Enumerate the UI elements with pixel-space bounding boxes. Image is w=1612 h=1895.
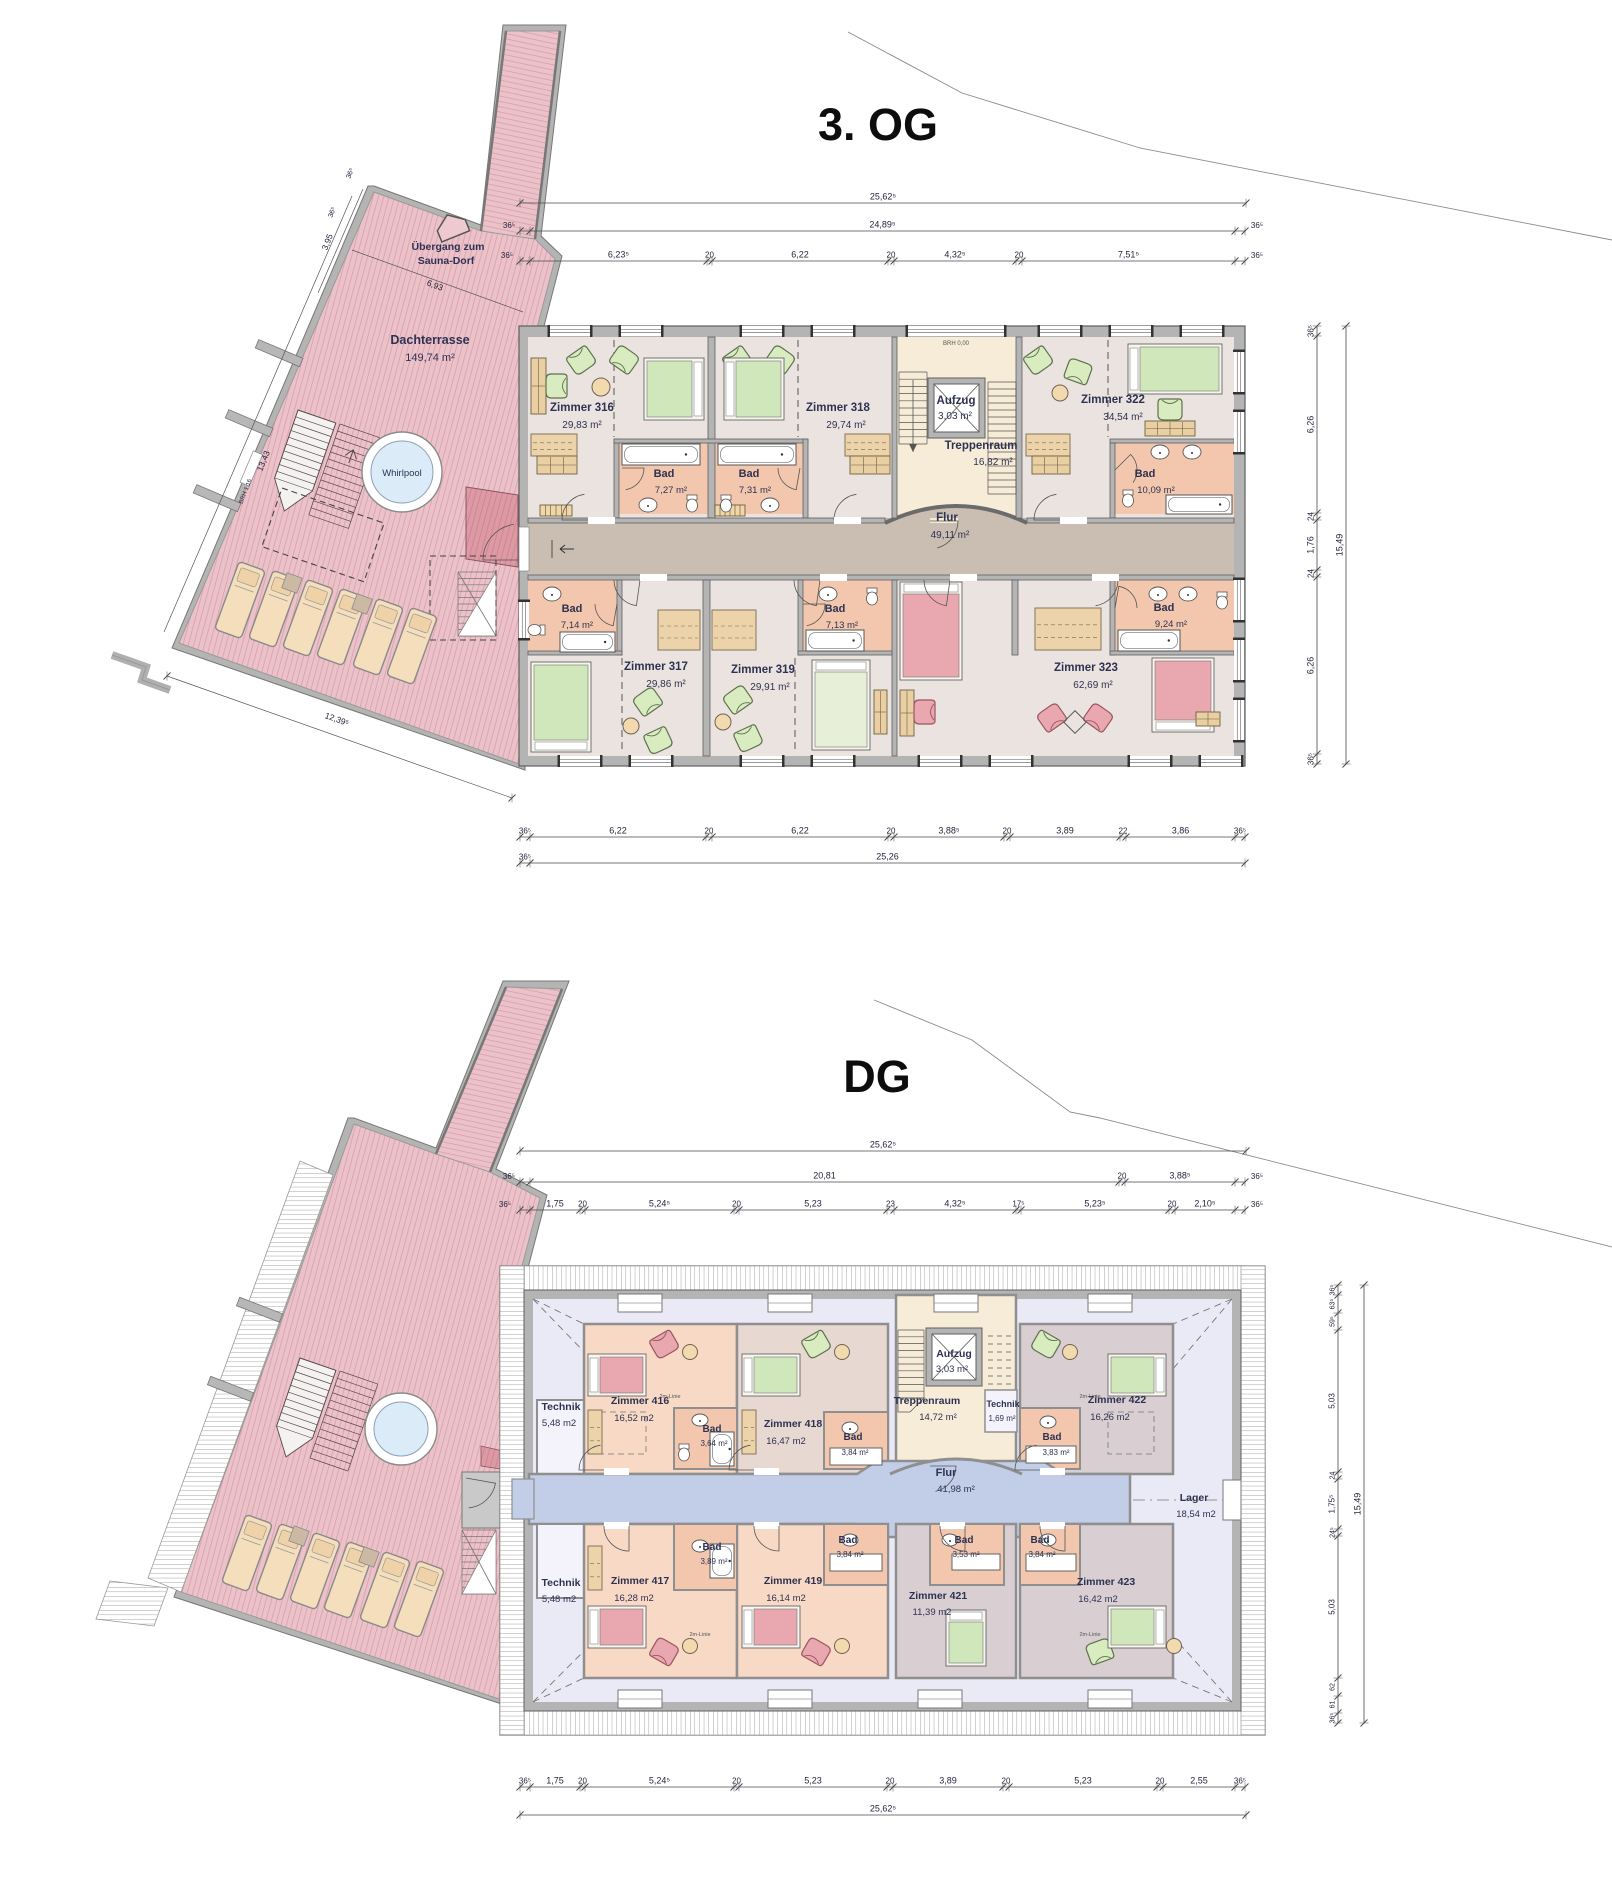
svg-text:4,32⁵: 4,32⁵: [944, 1199, 966, 1209]
svg-text:36⁵: 36⁵: [1307, 325, 1316, 337]
svg-text:Bad: Bad: [1154, 602, 1175, 614]
svg-text:36⁵: 36⁵: [503, 221, 515, 230]
svg-text:36⁵: 36⁵: [519, 853, 531, 862]
svg-text:7,14 m²: 7,14 m²: [561, 620, 593, 631]
svg-text:Technik: Technik: [542, 1401, 581, 1413]
svg-text:18,54 m2: 18,54 m2: [1176, 1509, 1216, 1520]
svg-text:3,89: 3,89: [939, 1776, 957, 1786]
svg-text:25,62⁵: 25,62⁵: [870, 1804, 897, 1814]
svg-text:Bad: Bad: [1135, 468, 1156, 480]
svg-text:14,72 m²: 14,72 m²: [919, 1412, 957, 1423]
svg-text:36⁵: 36⁵: [503, 1172, 515, 1181]
svg-text:24,89⁵: 24,89⁵: [869, 220, 896, 230]
svg-text:20: 20: [705, 251, 714, 260]
svg-text:Zimmer 319: Zimmer 319: [731, 664, 795, 676]
svg-text:2m-Linie: 2m-Linie: [689, 1632, 710, 1638]
svg-text:6,22: 6,22: [791, 826, 809, 836]
svg-text:6,23⁵: 6,23⁵: [608, 250, 630, 260]
svg-text:36⁵: 36⁵: [499, 1200, 511, 1209]
svg-text:Zimmer 318: Zimmer 318: [806, 402, 871, 414]
svg-text:16,47 m2: 16,47 m2: [766, 1436, 806, 1447]
svg-text:20: 20: [1002, 1777, 1011, 1786]
svg-text:Bad: Bad: [703, 1424, 722, 1435]
svg-text:20: 20: [1015, 251, 1024, 260]
svg-text:34,54 m²: 34,54 m²: [1103, 412, 1143, 423]
svg-text:Zimmer 418: Zimmer 418: [764, 1418, 823, 1430]
svg-text:1,69 m²: 1,69 m²: [988, 1414, 1015, 1423]
svg-text:3,84 m²: 3,84 m²: [841, 1448, 868, 1457]
svg-text:36⁵: 36⁵: [519, 1777, 531, 1786]
svg-text:24⁵: 24⁵: [1330, 1527, 1337, 1538]
svg-text:62,69 m²: 62,69 m²: [1073, 680, 1113, 691]
svg-text:Flur: Flur: [936, 512, 958, 524]
svg-text:29,86 m²: 29,86 m²: [646, 679, 686, 690]
svg-text:Treppenraum: Treppenraum: [894, 1395, 961, 1407]
svg-text:23: 23: [886, 1200, 895, 1209]
svg-text:BRH 0,00: BRH 0,00: [943, 341, 970, 347]
svg-text:29,91 m²: 29,91 m²: [750, 682, 790, 693]
svg-text:36⁵: 36⁵: [1234, 1777, 1246, 1786]
svg-text:7,27 m²: 7,27 m²: [655, 485, 687, 496]
svg-text:5,48 m2: 5,48 m2: [542, 1418, 576, 1429]
svg-text:20: 20: [886, 1777, 895, 1786]
svg-text:25,26: 25,26: [876, 852, 899, 862]
svg-text:Bad: Bad: [739, 468, 760, 480]
svg-text:5,23: 5,23: [804, 1776, 822, 1786]
svg-text:1,75: 1,75: [546, 1199, 564, 1209]
svg-text:36⁵: 36⁵: [1307, 753, 1316, 765]
svg-text:10,09 m²: 10,09 m²: [1137, 485, 1175, 496]
svg-text:Zimmer 417: Zimmer 417: [611, 1575, 670, 1587]
svg-text:4,32⁵: 4,32⁵: [944, 250, 966, 260]
svg-text:20: 20: [1003, 827, 1012, 836]
svg-text:Sauna-Dorf: Sauna-Dorf: [418, 255, 475, 267]
svg-text:49,11 m²: 49,11 m²: [931, 530, 970, 541]
svg-text:3,03 m²: 3,03 m²: [936, 1364, 968, 1375]
svg-text:20: 20: [887, 251, 896, 260]
svg-text:Bad: Bad: [839, 1535, 858, 1546]
svg-text:3,84 m²: 3,84 m²: [836, 1550, 863, 1559]
svg-text:29,74 m²: 29,74 m²: [826, 420, 866, 431]
svg-text:5,03: 5,03: [1328, 1393, 1337, 1409]
svg-text:7,51⁵: 7,51⁵: [1118, 250, 1140, 260]
svg-text:25,62⁵: 25,62⁵: [870, 1140, 897, 1150]
svg-text:DG: DG: [843, 1051, 911, 1102]
svg-text:Bad: Bad: [1043, 1432, 1062, 1443]
svg-text:29,83 m²: 29,83 m²: [562, 420, 602, 431]
svg-text:5,23: 5,23: [1074, 1776, 1092, 1786]
svg-text:5,03: 5,03: [1328, 1599, 1337, 1615]
svg-text:3,03 m²: 3,03 m²: [938, 411, 973, 422]
svg-text:16,14 m2: 16,14 m2: [766, 1593, 806, 1604]
svg-text:36⁵: 36⁵: [1234, 827, 1246, 836]
svg-text:3,88⁵: 3,88⁵: [938, 826, 960, 836]
svg-text:20: 20: [1156, 1777, 1165, 1786]
svg-text:22: 22: [1119, 827, 1128, 836]
svg-text:Übergang zum: Übergang zum: [412, 240, 485, 253]
svg-text:2m-Linie: 2m-Linie: [659, 1394, 680, 1400]
svg-text:2,55: 2,55: [1190, 1776, 1208, 1786]
svg-text:Bad: Bad: [844, 1432, 863, 1443]
svg-text:Whirlpool: Whirlpool: [382, 468, 422, 479]
svg-text:9,24 m²: 9,24 m²: [1155, 619, 1187, 630]
svg-text:63⁵: 63⁵: [1330, 1299, 1337, 1310]
svg-text:24: 24: [1330, 1472, 1337, 1480]
svg-text:3,83 m²: 3,83 m²: [1042, 1448, 1069, 1457]
svg-text:36⁵: 36⁵: [1330, 1713, 1337, 1724]
svg-text:36⁵: 36⁵: [519, 827, 531, 836]
svg-text:3,89: 3,89: [1056, 826, 1074, 836]
svg-text:16,52 m2: 16,52 m2: [614, 1413, 654, 1424]
svg-text:Zimmer 419: Zimmer 419: [764, 1575, 823, 1587]
svg-text:20: 20: [578, 1200, 587, 1209]
svg-text:25,62⁵: 25,62⁵: [870, 192, 897, 202]
svg-text:3,88⁵: 3,88⁵: [1169, 1171, 1191, 1181]
svg-text:36⁵: 36⁵: [1330, 1285, 1337, 1296]
svg-text:Zimmer 316: Zimmer 316: [550, 402, 614, 414]
svg-text:36⁵: 36⁵: [1251, 1172, 1263, 1181]
svg-text:3,89 m²: 3,89 m²: [700, 1557, 727, 1566]
svg-text:20: 20: [1168, 1200, 1177, 1209]
svg-text:16,28 m2: 16,28 m2: [614, 1593, 654, 1604]
svg-text:41,98 m²: 41,98 m²: [937, 1484, 975, 1495]
svg-text:149,74 m²: 149,74 m²: [405, 352, 455, 364]
svg-text:20: 20: [705, 827, 714, 836]
svg-text:Technik: Technik: [542, 1577, 581, 1589]
svg-text:16,42 m2: 16,42 m2: [1078, 1594, 1118, 1605]
svg-text:Aufzug: Aufzug: [936, 1348, 972, 1360]
svg-text:59⁵: 59⁵: [1330, 1316, 1337, 1327]
svg-text:Dachterrasse: Dachterrasse: [390, 333, 469, 347]
svg-text:2m-Linie: 2m-Linie: [1079, 1394, 1100, 1400]
svg-text:7,31 m²: 7,31 m²: [739, 485, 771, 496]
svg-text:36⁵: 36⁵: [501, 251, 513, 260]
svg-text:5,23⁵: 5,23⁵: [1084, 1199, 1106, 1209]
svg-text:Aufzug: Aufzug: [937, 395, 976, 407]
svg-text:5,48 m2: 5,48 m2: [542, 1594, 576, 1605]
svg-text:3,53 m²: 3,53 m²: [952, 1550, 979, 1559]
svg-text:3,64 m²: 3,64 m²: [700, 1439, 727, 1448]
svg-text:Zimmer 322: Zimmer 322: [1081, 394, 1145, 406]
svg-text:6,22: 6,22: [791, 250, 809, 260]
svg-text:5,24⁵: 5,24⁵: [649, 1776, 671, 1786]
svg-text:Zimmer 423: Zimmer 423: [1077, 1576, 1136, 1588]
svg-text:Bad: Bad: [562, 603, 583, 615]
svg-text:Zimmer 317: Zimmer 317: [624, 661, 688, 673]
svg-text:Flur: Flur: [936, 1467, 957, 1479]
svg-text:Bad: Bad: [703, 1542, 722, 1553]
svg-text:15,49: 15,49: [1353, 1493, 1363, 1516]
svg-text:6,22: 6,22: [609, 826, 627, 836]
svg-text:20: 20: [732, 1777, 741, 1786]
svg-text:3,86: 3,86: [1172, 826, 1190, 836]
svg-text:Bad: Bad: [1031, 1535, 1050, 1546]
svg-text:36⁵: 36⁵: [1251, 251, 1263, 260]
svg-text:2m-Linie: 2m-Linie: [1079, 1632, 1100, 1638]
svg-text:16,82 m²: 16,82 m²: [973, 457, 1013, 468]
svg-text:24: 24: [1307, 512, 1316, 521]
svg-text:Bad: Bad: [825, 603, 846, 615]
svg-text:Zimmer 421: Zimmer 421: [909, 1590, 968, 1602]
svg-text:36⁵: 36⁵: [1251, 221, 1263, 230]
svg-text:2,10⁵: 2,10⁵: [1194, 1199, 1216, 1209]
svg-text:20,81: 20,81: [813, 1171, 836, 1181]
svg-text:7,13 m²: 7,13 m²: [826, 620, 858, 631]
svg-text:5,24⁵: 5,24⁵: [649, 1199, 671, 1209]
svg-text:5,23: 5,23: [804, 1199, 822, 1209]
svg-text:3. OG: 3. OG: [818, 99, 938, 150]
svg-text:20: 20: [1118, 1172, 1127, 1181]
svg-text:36⁵: 36⁵: [1251, 1200, 1263, 1209]
svg-text:Lager: Lager: [1180, 1492, 1209, 1504]
svg-text:6,26: 6,26: [1306, 416, 1316, 434]
svg-text:11,39 m2: 11,39 m2: [913, 1607, 952, 1618]
svg-text:Technik: Technik: [986, 1399, 1020, 1409]
svg-text:1,75: 1,75: [546, 1776, 564, 1786]
svg-text:20: 20: [578, 1777, 587, 1786]
svg-text:Treppenraum: Treppenraum: [945, 440, 1018, 452]
svg-text:20: 20: [887, 827, 896, 836]
svg-text:61: 61: [1330, 1701, 1337, 1709]
svg-text:3,84 m²: 3,84 m²: [1028, 1550, 1055, 1559]
svg-text:62: 62: [1330, 1683, 1337, 1691]
svg-text:Bad: Bad: [654, 468, 675, 480]
svg-text:6,26: 6,26: [1306, 657, 1316, 675]
svg-text:15,49: 15,49: [1335, 534, 1345, 557]
svg-text:17⁵: 17⁵: [1012, 1200, 1024, 1209]
svg-text:1,75⁵: 1,75⁵: [1328, 1495, 1337, 1514]
svg-text:24: 24: [1307, 569, 1316, 578]
svg-text:20: 20: [732, 1200, 741, 1209]
svg-text:16,26 m2: 16,26 m2: [1090, 1412, 1130, 1423]
svg-text:1,76: 1,76: [1306, 536, 1316, 554]
svg-text:Bad: Bad: [955, 1535, 974, 1546]
svg-text:Zimmer 323: Zimmer 323: [1054, 662, 1118, 674]
